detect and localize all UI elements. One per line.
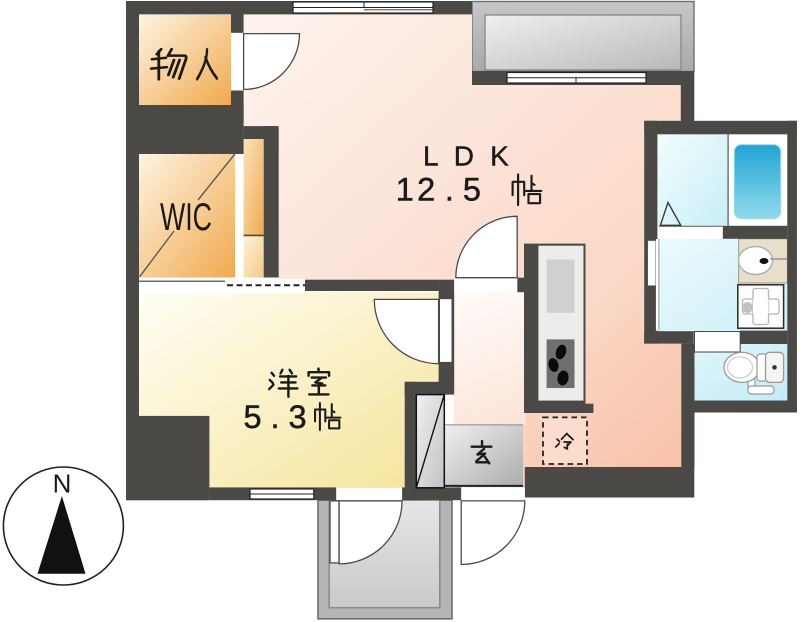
svg-text:1: 1 bbox=[396, 172, 414, 208]
svg-text:2: 2 bbox=[417, 172, 435, 208]
svg-text:L D K: L D K bbox=[423, 141, 513, 172]
svg-text:N: N bbox=[53, 469, 72, 499]
svg-text:5: 5 bbox=[243, 399, 261, 435]
svg-text:5: 5 bbox=[463, 172, 481, 208]
svg-text:WIC: WIC bbox=[160, 196, 212, 239]
svg-text:.: . bbox=[270, 399, 279, 435]
svg-text:.: . bbox=[445, 172, 454, 208]
svg-text:3: 3 bbox=[288, 399, 306, 435]
